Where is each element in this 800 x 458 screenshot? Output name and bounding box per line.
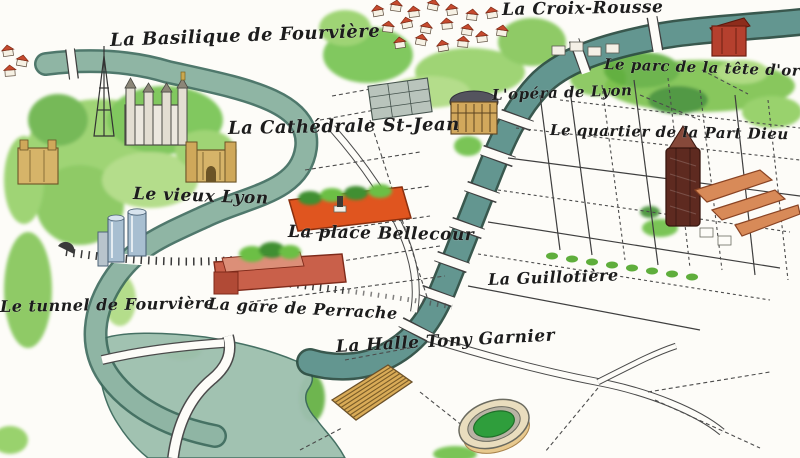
part-dieu-tower-icon <box>666 126 700 226</box>
map-artwork <box>0 0 800 458</box>
bellecour-statue <box>337 196 343 207</box>
saone-bridge <box>70 48 74 80</box>
lyon-illustrated-map: La Croix-Rousse La Basilique de Fourvièr… <box>0 0 800 458</box>
opera-icon <box>450 91 498 134</box>
place-bellecour-square <box>289 184 411 231</box>
parc-tete-dor-trees <box>604 52 800 128</box>
terreaux-block-icon <box>368 78 432 120</box>
perrache-station-icon <box>214 242 346 294</box>
